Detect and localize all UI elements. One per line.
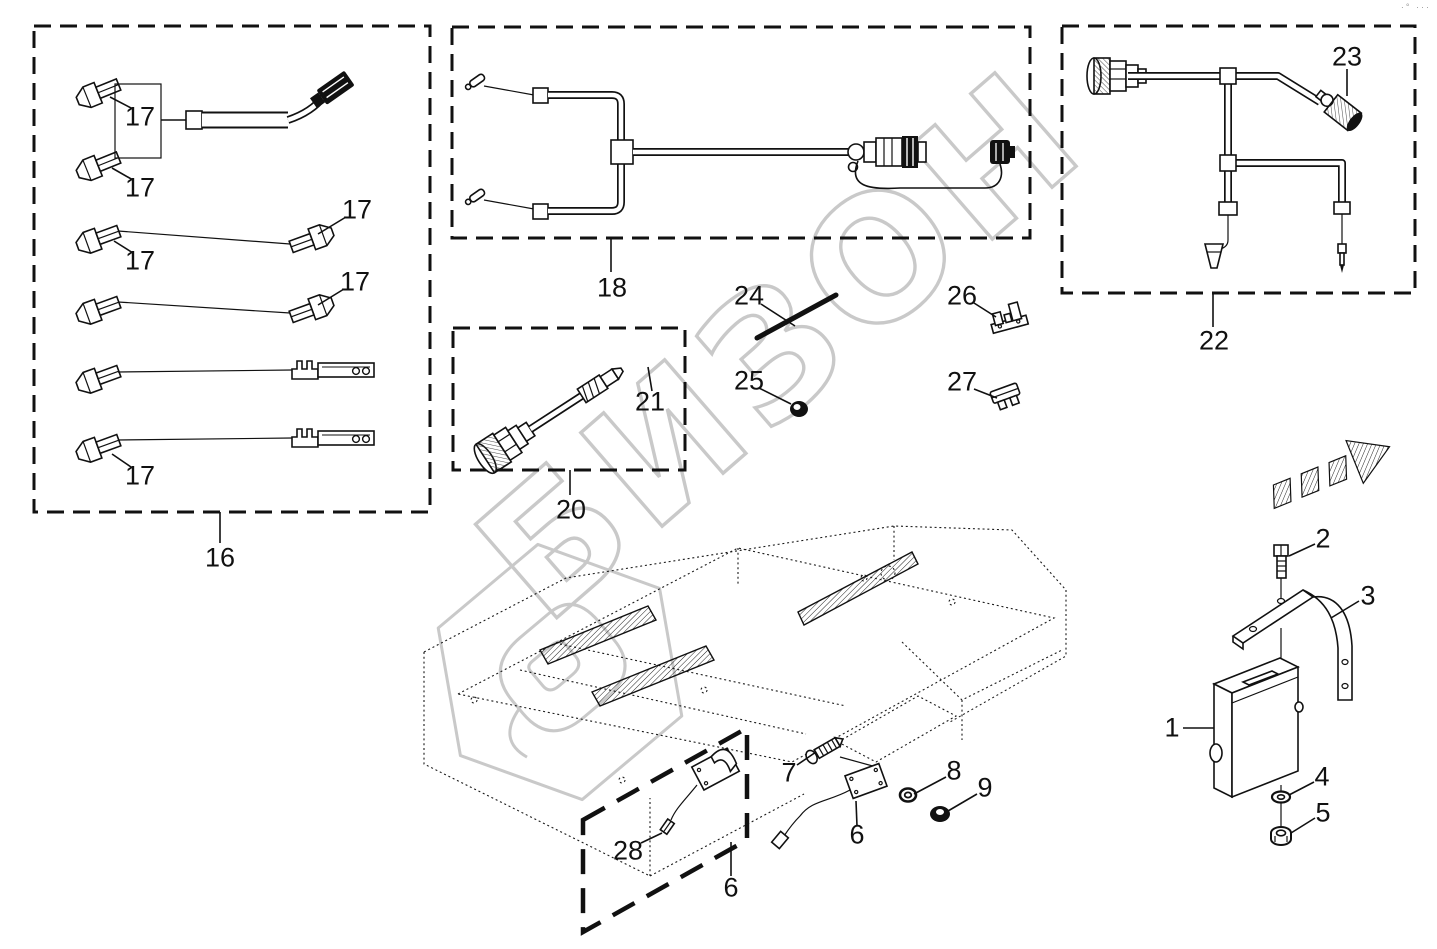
clip-26 <box>987 301 1028 333</box>
callout-1: 1 <box>1164 715 1179 742</box>
screw-7 <box>804 733 847 766</box>
callout-2: 2 <box>1315 526 1330 553</box>
callout-17: 17 <box>125 248 155 275</box>
protective-cap <box>990 140 1010 164</box>
direction-arrow <box>1261 426 1399 517</box>
cable-kit-box-16 <box>34 26 430 543</box>
parts-diagram-page: БИЗОН <box>0 0 1437 949</box>
callout-21: 21 <box>635 389 665 416</box>
callout-17: 17 <box>340 269 370 296</box>
callout-8: 8 <box>946 758 961 785</box>
callout-22: 22 <box>1199 328 1229 355</box>
sensor-connector-28 <box>660 819 674 834</box>
callout-6-box: 6 <box>723 875 738 902</box>
callout-17: 17 <box>125 175 155 202</box>
harness-bundle <box>798 552 918 625</box>
corner-mark: ·° ··· <box>1401 2 1431 12</box>
black-connector <box>308 71 354 111</box>
nut-5 <box>1271 827 1291 845</box>
watermark-text: БИЗОН <box>442 31 1122 659</box>
probe-tip <box>464 73 486 91</box>
callout-18: 18 <box>597 275 627 302</box>
callout-17: 17 <box>125 104 155 131</box>
module-knob <box>1210 744 1222 762</box>
callout-24: 24 <box>734 283 764 310</box>
washer-4 <box>1272 792 1290 803</box>
module-1 <box>1210 658 1303 797</box>
sensor-plate-assembly <box>772 733 977 849</box>
callout-17: 17 <box>342 197 372 224</box>
callout-25: 25 <box>734 368 764 395</box>
callout-28: 28 <box>613 838 643 865</box>
nut-9 <box>930 806 950 822</box>
callout-26: 26 <box>947 283 977 310</box>
callout-5: 5 <box>1315 800 1330 827</box>
callout-16: 16 <box>205 545 235 572</box>
callout-6-plate: 6 <box>849 822 864 849</box>
callout-20: 20 <box>556 497 586 524</box>
callout-23: 23 <box>1332 44 1362 71</box>
callout-17: 17 <box>125 463 155 490</box>
boot-terminal <box>1205 244 1223 268</box>
callout-27: 27 <box>947 369 977 396</box>
plate-6 <box>845 764 887 799</box>
sensor-bracket <box>691 746 741 790</box>
callout-9: 9 <box>977 775 992 802</box>
round-plug-23 <box>1312 85 1366 134</box>
callout-7: 7 <box>781 760 796 787</box>
diagram-line-art: БИЗОН <box>0 0 1437 949</box>
screw-2 <box>1274 545 1288 578</box>
probe-tip <box>464 188 486 206</box>
callout-3: 3 <box>1360 583 1375 610</box>
pin-terminal <box>1338 244 1346 253</box>
harness-bundle <box>592 646 714 706</box>
sensor-box-6 <box>583 728 747 932</box>
callout-4: 4 <box>1314 764 1329 791</box>
module-assembly <box>1183 544 1359 845</box>
